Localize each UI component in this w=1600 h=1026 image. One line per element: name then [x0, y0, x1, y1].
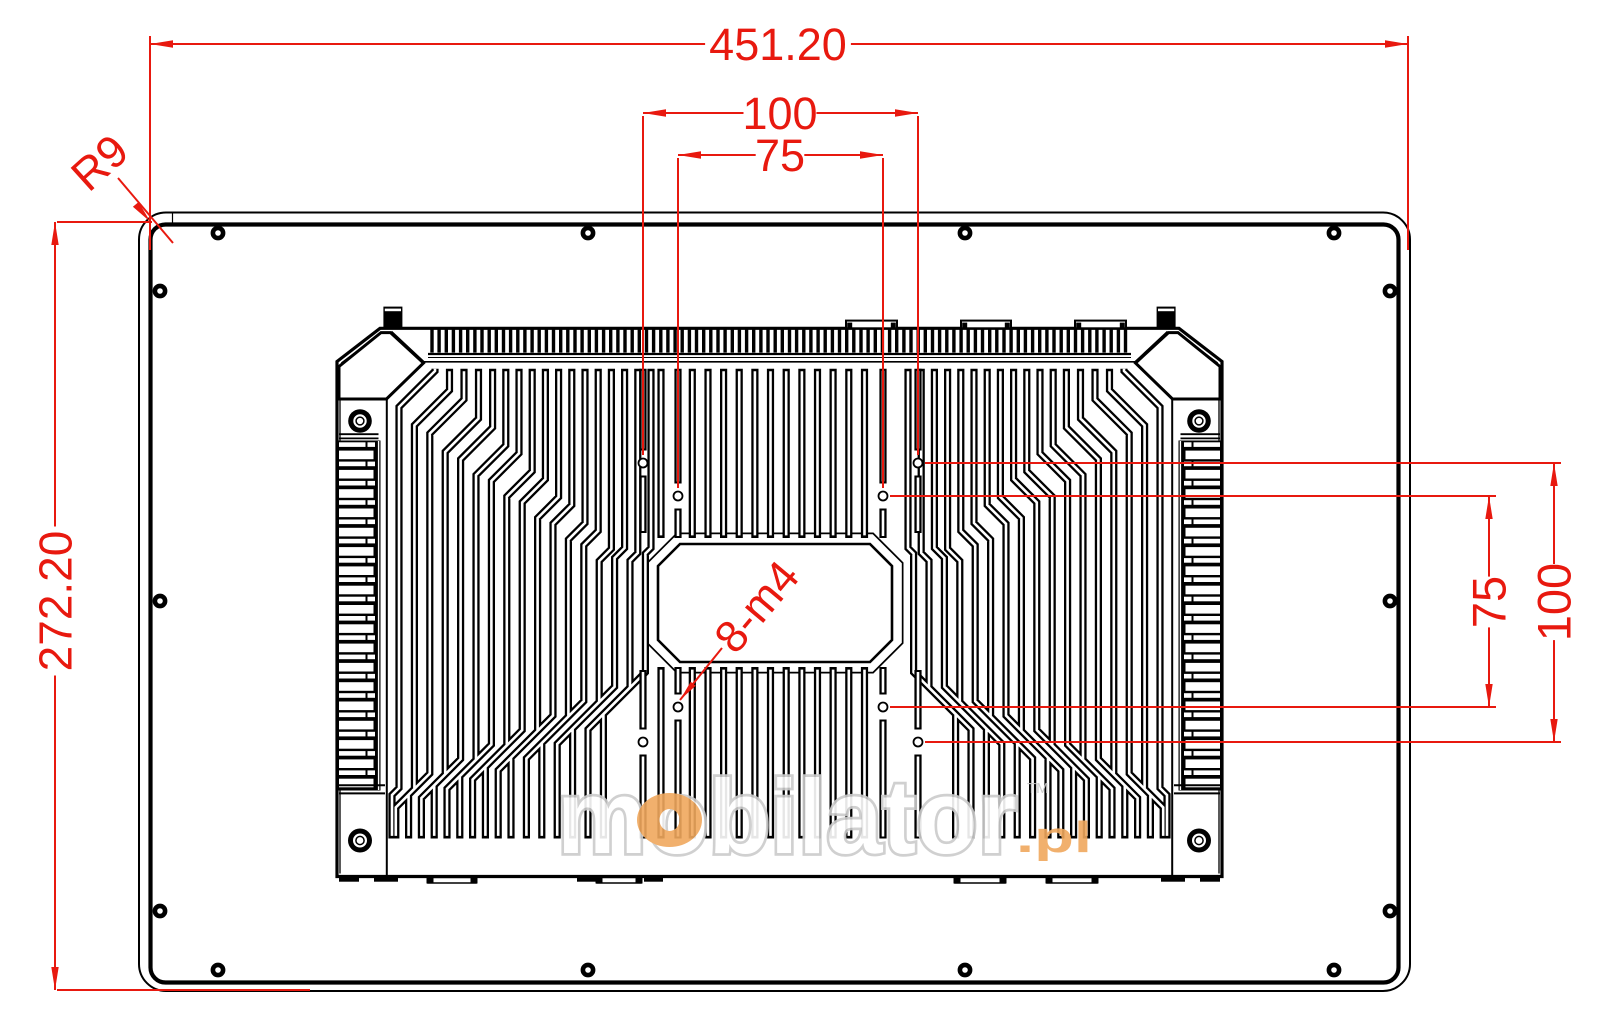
svg-text:451.20: 451.20	[709, 19, 847, 70]
svg-text:TM: TM	[1027, 780, 1049, 797]
svg-text:75: 75	[1463, 576, 1516, 628]
svg-text:mobilator: mobilator	[557, 759, 1017, 876]
svg-text:.pl: .pl	[1016, 813, 1092, 862]
svg-text:272.20: 272.20	[29, 531, 81, 672]
svg-text:100: 100	[1528, 563, 1581, 641]
svg-text:75: 75	[755, 130, 805, 181]
